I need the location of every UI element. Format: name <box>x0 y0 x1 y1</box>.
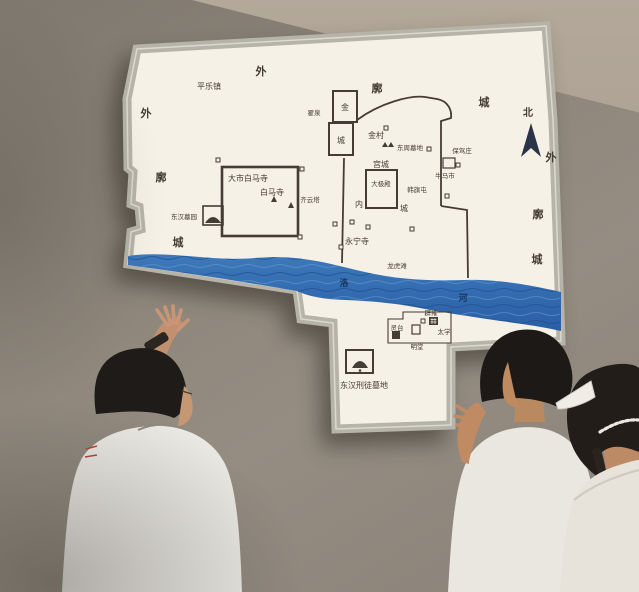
outer-wall-top-wai: 外 <box>255 64 267 78</box>
museum-scene: 洛 河 <box>0 0 639 592</box>
outer-wall-left-wai: 外 <box>140 106 152 120</box>
label-hanqitun: 韩旗屯 <box>407 185 427 194</box>
lingtai-marker <box>392 331 400 339</box>
label-inner-city-cheng: 城 <box>400 204 408 213</box>
label-baojiazhuang: 保驾庄 <box>452 146 472 155</box>
river-label-he: 河 <box>458 292 467 304</box>
label-jinyong-cheng: 城 <box>337 136 345 145</box>
outer-wall-right-wai: 外 <box>545 150 557 164</box>
label-taiji-hall: 大极殿 <box>371 179 391 188</box>
visitor-left-shirt <box>62 426 242 592</box>
biyong-marker <box>429 317 438 325</box>
label-inner-city-nei: 内 <box>355 199 363 209</box>
outer-wall-left-kuo: 廓 <box>156 170 167 184</box>
label-biyong: 辟雍 <box>425 308 439 317</box>
label-mingtang: 明堂 <box>411 342 425 351</box>
label-jinyong-jin: 金 <box>341 102 349 112</box>
label-niumashi: 牛马市 <box>435 171 455 180</box>
north-label: 北 <box>523 106 533 119</box>
label-lingtai: 灵台 <box>391 323 404 332</box>
outer-wall-left-cheng: 城 <box>173 235 184 249</box>
convict-cemetery-dot <box>359 369 362 372</box>
outer-wall-right-kuo: 廓 <box>533 207 544 221</box>
label-zhaiquan: 翟泉 <box>308 108 322 117</box>
label-dongzhou-cemetery: 东周墓地 <box>397 143 424 152</box>
label-taixue: 太学 <box>438 327 452 336</box>
scene-drawing: 洛 河 <box>0 0 639 592</box>
label-qiyun-pagoda: 齐云塔 <box>300 195 320 204</box>
label-jincun: 金村 <box>368 130 384 140</box>
visitor-left-hair <box>95 348 187 418</box>
label-convict-cemetery: 东汉刑徒墓地 <box>340 380 388 390</box>
label-palace-city: 宫城 <box>373 159 389 169</box>
outer-wall-right-cheng: 城 <box>532 252 543 266</box>
label-donghan-cemetery: 东汉墓园 <box>171 212 197 221</box>
river-label-luo: 洛 <box>339 277 349 289</box>
label-baima-temple: 白马寺 <box>260 187 284 197</box>
visitor-left <box>62 306 242 592</box>
outer-wall-top-cheng: 城 <box>479 95 490 109</box>
label-longhutan: 龙虎滩 <box>387 261 407 270</box>
label-great-market-baima: 大市白马寺 <box>228 173 268 183</box>
outer-wall-top-kuo: 廓 <box>372 81 383 95</box>
label-pingle-town: 平乐镇 <box>197 81 221 91</box>
label-yongning-temple: 永宁寺 <box>345 236 369 246</box>
visitor-right-neck <box>514 398 545 422</box>
